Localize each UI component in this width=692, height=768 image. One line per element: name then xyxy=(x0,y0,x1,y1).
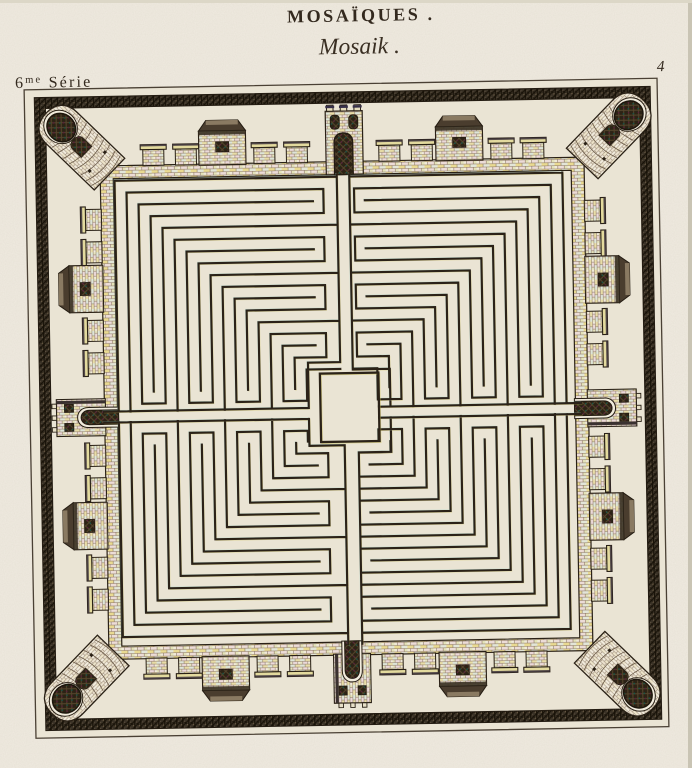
svg-text:Mosaik .: Mosaik . xyxy=(318,33,400,60)
svg-text:MOSAÏQUES .: MOSAÏQUES . xyxy=(287,4,435,27)
svg-text:4: 4 xyxy=(657,58,665,75)
